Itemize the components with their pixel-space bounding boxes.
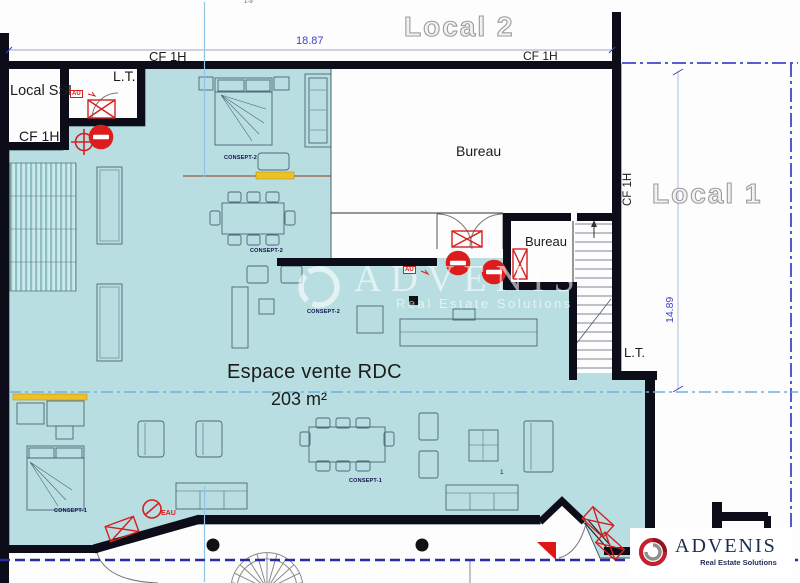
zone-label-concept-2: CONSEPT-2 xyxy=(224,156,257,162)
room-label-lt: L.T. xyxy=(624,346,645,359)
room-label-lt: L.T. xyxy=(113,69,136,83)
shelving-unit xyxy=(10,163,76,291)
condemned-opening-icon xyxy=(88,100,115,118)
main-area-title: Espace vente RDC xyxy=(227,362,402,382)
zone-label-concept-1: CONSEPT-1 xyxy=(349,479,382,485)
zone-label-concept-2: CONSEPT-2 xyxy=(250,249,283,255)
au-marker: AU xyxy=(403,266,416,274)
entrance-marker-icon xyxy=(537,542,556,560)
au-marker: AU xyxy=(70,90,83,98)
zone-label-concept-1: CONSEPT-1 xyxy=(54,509,87,515)
room-label-local-ssi: Local SSI xyxy=(10,84,72,99)
unit-number: 1 xyxy=(500,470,504,477)
dimension-height: 14.89 xyxy=(665,297,676,323)
fire-rating-label: CF 1H xyxy=(623,173,635,206)
au-arrow-icon xyxy=(88,92,95,96)
eau-marker: EAU xyxy=(161,510,176,517)
logo-tagline: Real Estate Solutions xyxy=(700,558,777,567)
main-area-size: 203 m² xyxy=(271,390,327,408)
floor-plan: ADVENIS Real Estate Solutions 1-9 18.87 … xyxy=(0,0,800,583)
logo-brand: ADVENIS xyxy=(675,536,777,556)
zone-label-concept-2: CONSEPT-2 xyxy=(307,310,340,316)
room-label-bureau: Bureau xyxy=(456,144,501,158)
column-icon xyxy=(207,539,220,552)
highlight-bar xyxy=(256,172,294,179)
highlight-bar xyxy=(13,394,87,400)
no-entry-icon xyxy=(482,260,507,285)
plan-scale-note: 1-9 xyxy=(244,0,253,5)
room-label-local-1: Local 1 xyxy=(652,180,762,208)
room-label-bureau: Bureau xyxy=(525,235,567,248)
advenis-swirl-icon xyxy=(637,536,669,568)
fire-rating-label: CF 1H xyxy=(523,50,558,62)
advenis-logo: ADVENIS Real Estate Solutions xyxy=(630,528,792,575)
room-label-local-2: Local 2 xyxy=(404,13,514,41)
revolving-door xyxy=(231,553,303,583)
fire-rating-label: CF 1H xyxy=(19,129,59,143)
fire-rating-label: CF 1H xyxy=(149,50,187,63)
column-icon xyxy=(416,539,429,552)
floor-box-icon xyxy=(409,296,418,305)
dimension-width: 18.87 xyxy=(296,36,324,47)
no-entry-icon xyxy=(446,251,471,276)
floor-plan-drawing xyxy=(0,0,800,583)
